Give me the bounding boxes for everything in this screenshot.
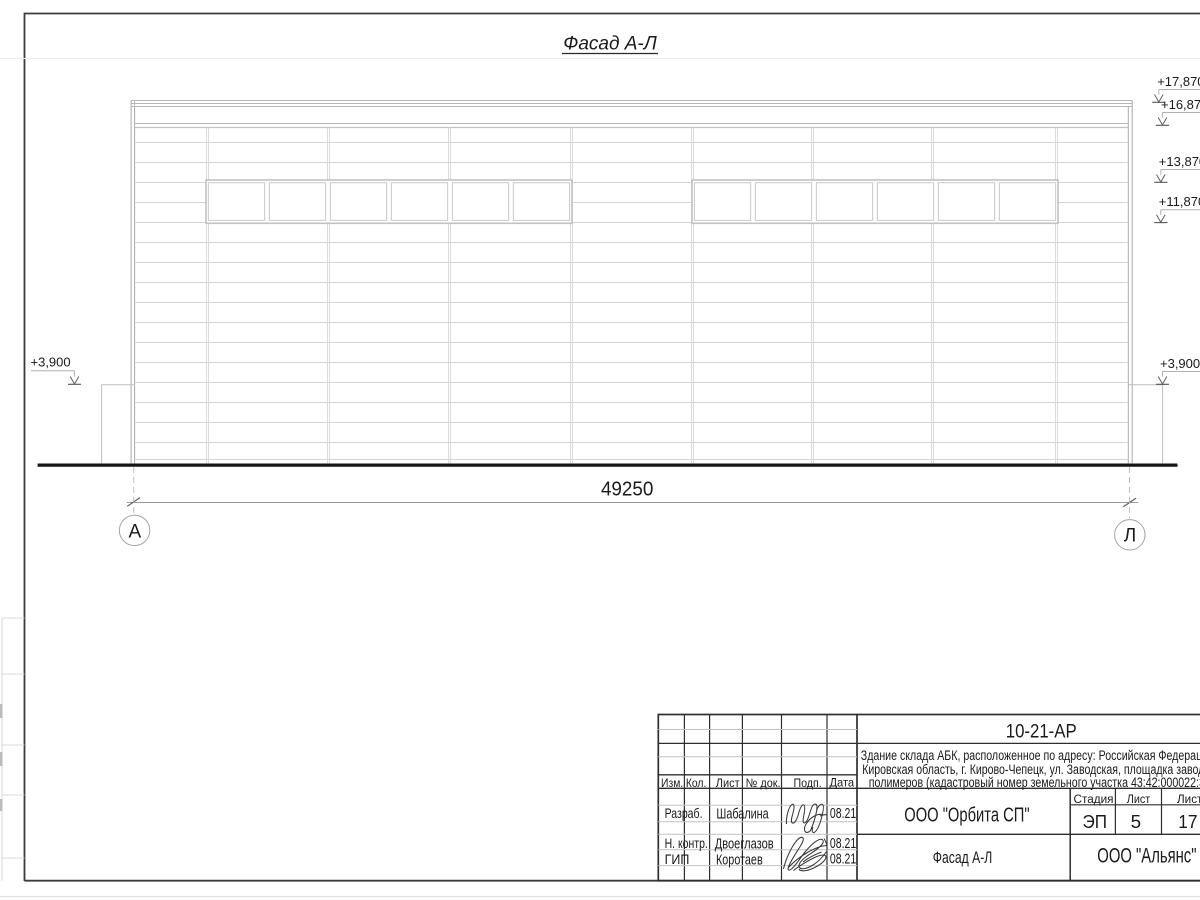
svg-text:Разраб.: Разраб. xyxy=(665,805,703,821)
svg-text:08.21: 08.21 xyxy=(830,836,856,852)
svg-text:+16,870: +16,870 xyxy=(1161,97,1200,112)
svg-text:Двоеглазов: Двоеглазов xyxy=(715,837,774,853)
svg-text:+11,870: +11,870 xyxy=(1159,194,1200,209)
svg-text:ООО "Альянс": ООО "Альянс" xyxy=(1097,845,1196,868)
svg-text:+13,870: +13,870 xyxy=(1159,154,1200,169)
svg-text:5: 5 xyxy=(1131,811,1141,832)
svg-text:10-21-АР: 10-21-АР xyxy=(1006,721,1077,742)
svg-text:+3,900: +3,900 xyxy=(1160,356,1200,371)
svg-text:ООО "Орбита СП": ООО "Орбита СП" xyxy=(904,804,1029,826)
svg-text:Стадия: Стадия xyxy=(1074,794,1114,806)
svg-text:Лист: Лист xyxy=(716,776,740,790)
svg-text:Л: Л xyxy=(1124,526,1136,547)
svg-text:Подп.: Подп. xyxy=(794,776,822,790)
svg-text:№ док.: № док. xyxy=(746,776,781,790)
svg-text:полимеров (кадастровый номер з: полимеров (кадастровый номер земельного … xyxy=(869,775,1200,790)
svg-text:Фасад А-Л: Фасад А-Л xyxy=(933,848,993,867)
svg-text:Лист: Лист xyxy=(1127,794,1151,806)
svg-text:08.21: 08.21 xyxy=(830,806,856,822)
svg-text:ГИП: ГИП xyxy=(665,851,690,867)
svg-text:А: А xyxy=(128,521,141,542)
svg-text:17: 17 xyxy=(1178,811,1197,832)
svg-text:+17,870: +17,870 xyxy=(1157,74,1200,89)
svg-text:Шабалина: Шабалина xyxy=(716,807,768,823)
svg-text:Здание склада АБК, расположенн: Здание склада АБК, расположенное по адре… xyxy=(861,748,1200,763)
svg-text:49250: 49250 xyxy=(601,479,654,501)
svg-text:ЭП: ЭП xyxy=(1083,811,1108,832)
svg-text:Коротаев: Коротаев xyxy=(716,853,763,869)
svg-text:08.21: 08.21 xyxy=(830,851,856,867)
svg-text:Дата: Дата xyxy=(829,776,854,790)
svg-text:Н. контр.: Н. контр. xyxy=(665,835,708,851)
svg-text:Изм.: Изм. xyxy=(661,776,683,790)
svg-text:+3,900: +3,900 xyxy=(31,355,71,370)
svg-text:Фасад А-Л: Фасад А-Л xyxy=(563,34,658,55)
svg-text:Кол.: Кол. xyxy=(686,776,707,790)
svg-text:Листов: Листов xyxy=(1177,794,1200,806)
